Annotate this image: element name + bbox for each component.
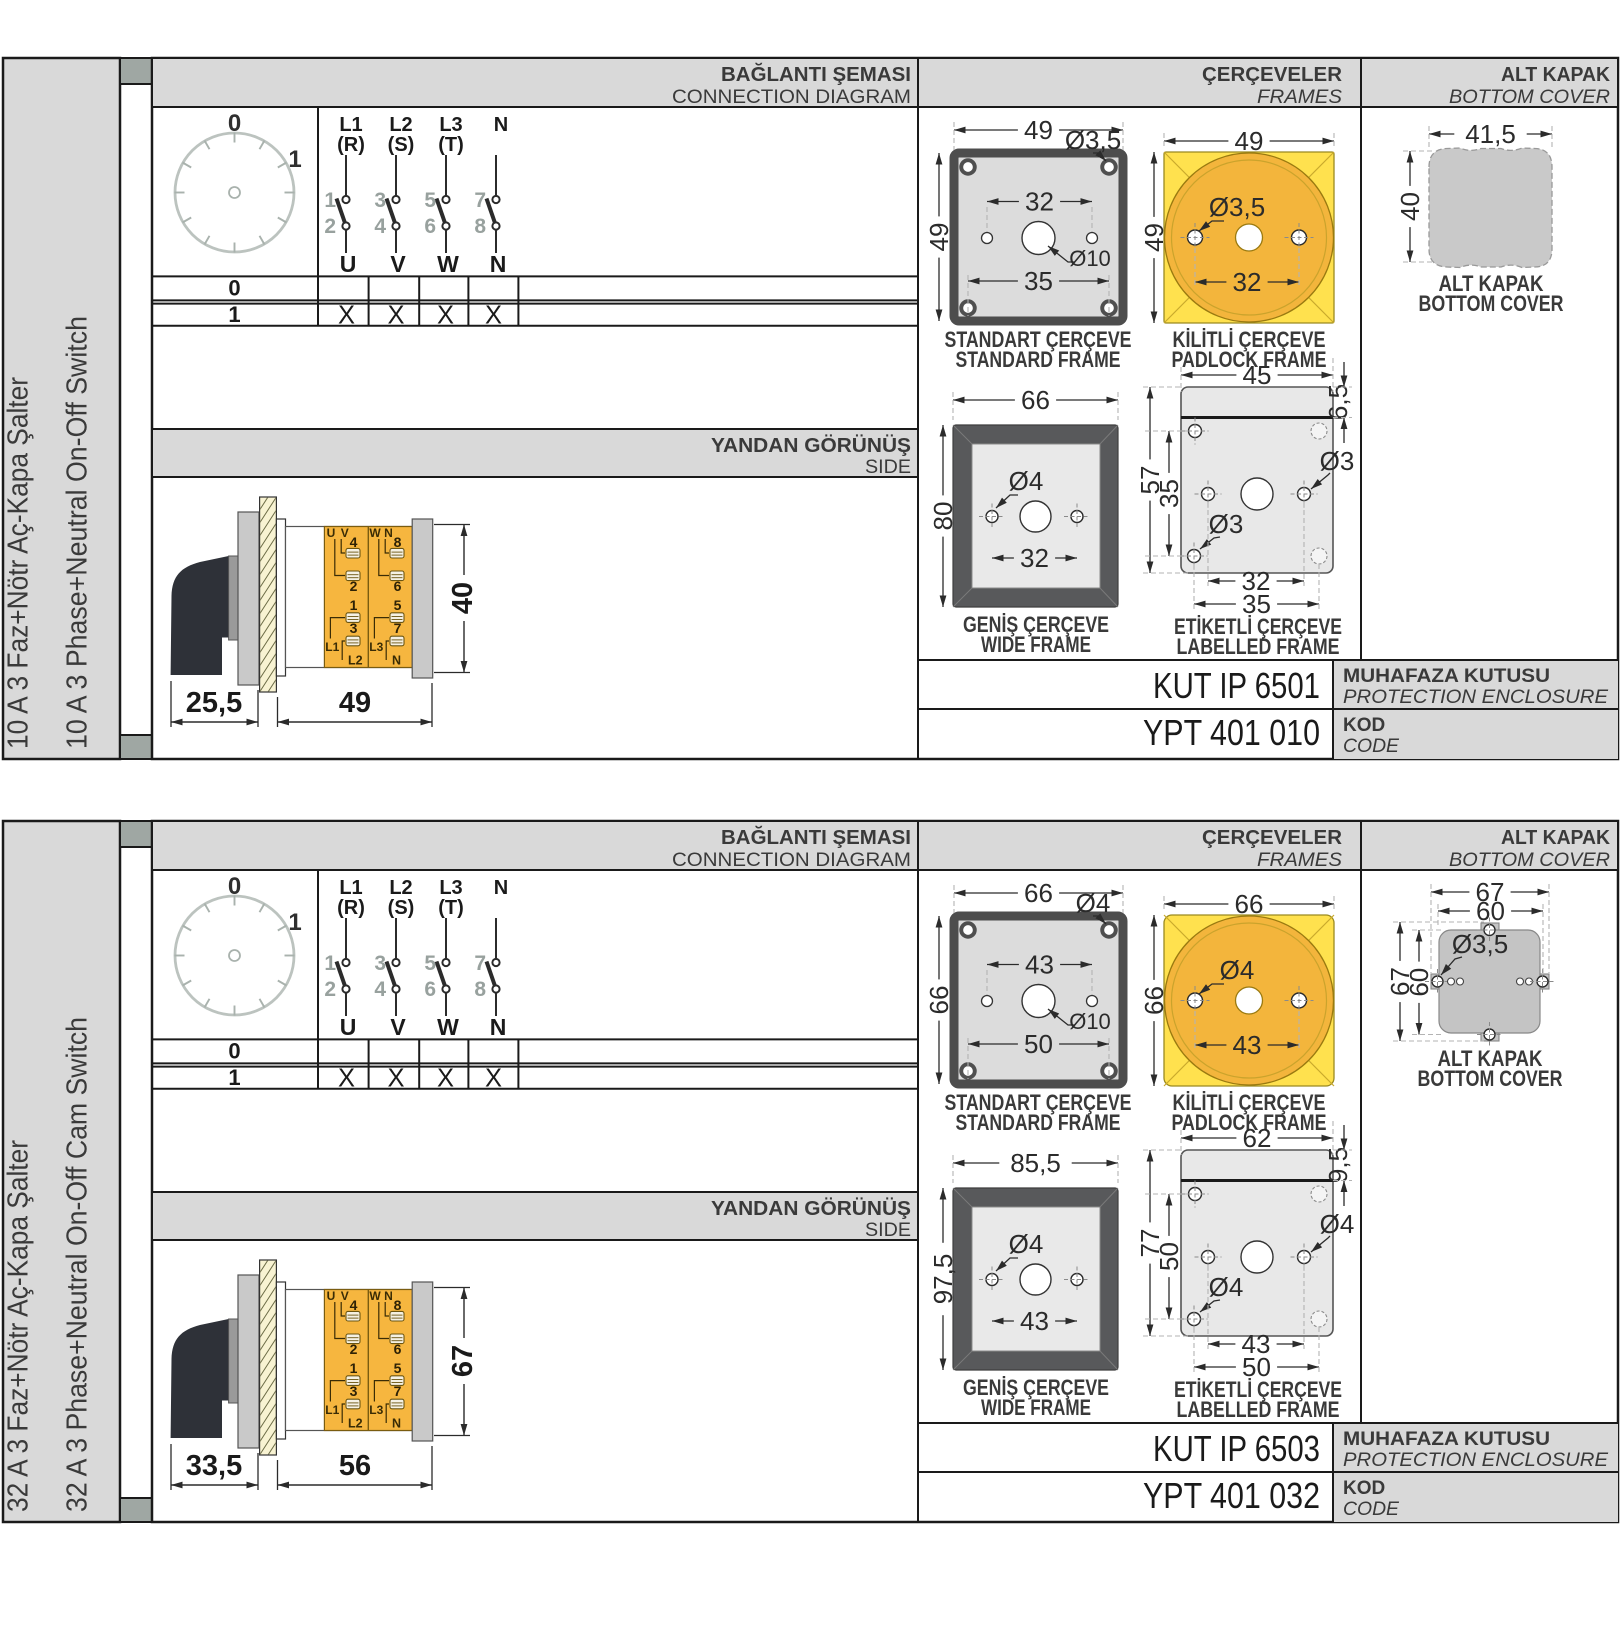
svg-text:X: X [338, 1065, 355, 1093]
svg-text:67: 67 [447, 1345, 479, 1377]
svg-text:40: 40 [447, 582, 479, 614]
svg-text:60: 60 [1476, 896, 1505, 926]
svg-text:STANDARD FRAME: STANDARD FRAME [956, 1110, 1121, 1135]
svg-text:Ø10: Ø10 [1069, 246, 1111, 271]
svg-text:10 A 3 Faz+Nötr Aç-Kapa Şalter: 10 A 3 Faz+Nötr Aç-Kapa Şalter [3, 377, 35, 749]
svg-text:YANDAN GÖRÜNÜŞ: YANDAN GÖRÜNÜŞ [711, 434, 911, 457]
svg-text:6: 6 [394, 1341, 402, 1357]
svg-text:L3: L3 [439, 114, 462, 136]
svg-text:N: N [494, 114, 508, 136]
svg-text:85,5: 85,5 [1010, 1148, 1061, 1178]
svg-text:45: 45 [1243, 360, 1272, 390]
svg-text:4: 4 [350, 1297, 358, 1313]
svg-text:V: V [341, 1289, 349, 1303]
svg-text:5: 5 [424, 952, 436, 975]
svg-text:W: W [369, 1289, 381, 1303]
svg-text:Ø3,5: Ø3,5 [1065, 125, 1121, 155]
svg-text:SIDE: SIDE [865, 1219, 911, 1241]
svg-text:CONNECTION DIAGRAM: CONNECTION DIAGRAM [672, 849, 911, 871]
svg-text:7: 7 [394, 620, 402, 636]
svg-text:YPT 401 010: YPT 401 010 [1143, 712, 1320, 753]
svg-text:2: 2 [324, 215, 336, 238]
svg-text:66: 66 [1235, 889, 1264, 919]
svg-text:BOTTOM COVER: BOTTOM COVER [1419, 291, 1564, 316]
svg-text:1: 1 [288, 909, 301, 936]
svg-text:BAĞLANTI ŞEMASI: BAĞLANTI ŞEMASI [721, 825, 911, 849]
svg-text:N: N [494, 877, 508, 899]
svg-text:32 A 3 Phase+Neutral On-Off Ca: 32 A 3 Phase+Neutral On-Off Cam Switch [62, 1017, 94, 1512]
svg-text:U: U [327, 1289, 336, 1303]
svg-text:8: 8 [474, 215, 486, 238]
svg-text:MUHAFAZA KUTUSU: MUHAFAZA KUTUSU [1343, 666, 1550, 687]
svg-text:KOD: KOD [1343, 1478, 1385, 1499]
svg-text:3: 3 [350, 1383, 358, 1399]
svg-text:Ø4: Ø4 [1076, 888, 1111, 918]
svg-text:66: 66 [1139, 986, 1169, 1015]
svg-text:L1: L1 [325, 1403, 339, 1417]
svg-text:BOTTOM COVER: BOTTOM COVER [1418, 1066, 1563, 1091]
svg-text:L3: L3 [369, 1403, 383, 1417]
svg-text:6: 6 [424, 215, 436, 238]
svg-text:L3: L3 [439, 877, 462, 899]
svg-text:6: 6 [394, 578, 402, 594]
svg-text:V: V [341, 526, 349, 540]
svg-text:L1: L1 [325, 640, 339, 654]
svg-text:35: 35 [1154, 479, 1184, 508]
svg-text:N: N [384, 526, 393, 540]
svg-text:32: 32 [1025, 186, 1054, 216]
svg-text:STANDARD FRAME: STANDARD FRAME [956, 347, 1121, 372]
svg-text:49: 49 [924, 223, 954, 252]
svg-text:W: W [437, 251, 459, 277]
svg-text:CODE: CODE [1343, 1499, 1399, 1520]
svg-text:49: 49 [339, 687, 371, 719]
svg-text:FRAMES: FRAMES [1257, 849, 1342, 871]
svg-text:(S): (S) [388, 897, 415, 919]
svg-text:N: N [384, 1289, 393, 1303]
svg-text:41,5: 41,5 [1465, 119, 1516, 149]
svg-text:49: 49 [1139, 223, 1169, 252]
svg-text:33,5: 33,5 [186, 1450, 242, 1482]
svg-text:6,5: 6,5 [1323, 384, 1353, 420]
svg-text:1: 1 [350, 597, 358, 613]
svg-text:25,5: 25,5 [186, 687, 242, 719]
svg-text:BOTTOM COVER: BOTTOM COVER [1449, 849, 1610, 871]
svg-text:32: 32 [1233, 267, 1262, 297]
svg-text:3: 3 [374, 952, 386, 975]
svg-text:3: 3 [374, 189, 386, 212]
svg-text:5: 5 [394, 1360, 402, 1376]
svg-text:N: N [490, 251, 507, 277]
svg-text:L2: L2 [348, 1417, 363, 1431]
svg-text:X: X [387, 1065, 404, 1093]
svg-text:PROTECTION ENCLOSURE: PROTECTION ENCLOSURE [1343, 1450, 1608, 1471]
svg-text:Ø4: Ø4 [1009, 1229, 1044, 1259]
svg-text:0: 0 [228, 275, 240, 300]
svg-text:BOTTOM COVER: BOTTOM COVER [1449, 86, 1610, 108]
svg-text:4: 4 [350, 534, 358, 550]
svg-text:KUT IP 6503: KUT IP 6503 [1153, 1428, 1320, 1469]
svg-text:N: N [392, 654, 401, 668]
svg-text:(T): (T) [438, 897, 464, 919]
svg-text:7: 7 [474, 189, 486, 212]
svg-text:8: 8 [394, 1297, 402, 1313]
svg-text:0: 0 [228, 1038, 240, 1063]
svg-text:80: 80 [928, 502, 958, 531]
svg-text:8: 8 [474, 978, 486, 1001]
svg-text:40: 40 [1395, 192, 1425, 221]
svg-text:CONNECTION DIAGRAM: CONNECTION DIAGRAM [672, 86, 911, 108]
svg-text:LABELLED FRAME: LABELLED FRAME [1177, 634, 1340, 659]
svg-text:Ø4: Ø4 [1209, 1272, 1244, 1302]
svg-text:49: 49 [1235, 126, 1264, 156]
svg-text:(T): (T) [438, 134, 464, 156]
svg-text:5: 5 [424, 189, 436, 212]
svg-text:32: 32 [1020, 543, 1049, 573]
svg-text:WIDE FRAME: WIDE FRAME [981, 632, 1091, 657]
svg-text:43: 43 [1233, 1030, 1262, 1060]
svg-text:0: 0 [228, 110, 241, 137]
svg-text:50: 50 [1154, 1242, 1184, 1271]
svg-text:L2: L2 [389, 877, 412, 899]
svg-text:Ø4: Ø4 [1320, 1209, 1355, 1239]
svg-text:X: X [338, 302, 355, 330]
svg-text:L1: L1 [339, 114, 362, 136]
svg-text:X: X [437, 1065, 454, 1093]
svg-text:BAĞLANTI ŞEMASI: BAĞLANTI ŞEMASI [721, 62, 911, 86]
svg-text:9,5: 9,5 [1323, 1147, 1353, 1183]
svg-text:ÇERÇEVELER: ÇERÇEVELER [1202, 64, 1343, 86]
svg-text:KOD: KOD [1343, 715, 1385, 736]
svg-text:(S): (S) [388, 134, 415, 156]
svg-text:V: V [390, 251, 406, 277]
svg-text:2: 2 [350, 578, 358, 594]
svg-text:1: 1 [288, 146, 301, 173]
svg-text:35: 35 [1024, 266, 1053, 296]
svg-text:X: X [485, 1065, 502, 1093]
svg-text:U: U [327, 526, 336, 540]
svg-text:43: 43 [1020, 1306, 1049, 1336]
svg-text:L2: L2 [348, 654, 363, 668]
svg-text:66: 66 [1021, 385, 1050, 415]
svg-text:Ø3,5: Ø3,5 [1452, 929, 1508, 959]
svg-text:WIDE FRAME: WIDE FRAME [981, 1395, 1091, 1420]
svg-text:7: 7 [394, 1383, 402, 1399]
svg-text:(R): (R) [337, 134, 365, 156]
svg-text:66: 66 [1024, 878, 1053, 908]
svg-text:FRAMES: FRAMES [1257, 86, 1342, 108]
svg-text:Ø3,5: Ø3,5 [1209, 192, 1265, 222]
svg-text:N: N [392, 1417, 401, 1431]
svg-text:ALT KAPAK: ALT KAPAK [1501, 827, 1611, 849]
svg-text:LABELLED FRAME: LABELLED FRAME [1177, 1397, 1340, 1422]
svg-text:62: 62 [1243, 1123, 1272, 1153]
svg-text:6: 6 [424, 978, 436, 1001]
svg-text:Ø4: Ø4 [1009, 466, 1044, 496]
svg-text:Ø3: Ø3 [1320, 446, 1355, 476]
svg-text:Ø3: Ø3 [1209, 509, 1244, 539]
svg-text:MUHAFAZA KUTUSU: MUHAFAZA KUTUSU [1343, 1429, 1550, 1450]
svg-text:1: 1 [324, 952, 336, 975]
svg-text:60: 60 [1404, 968, 1434, 997]
svg-text:L1: L1 [339, 877, 362, 899]
svg-text:X: X [437, 302, 454, 330]
svg-text:0: 0 [228, 873, 241, 900]
svg-text:X: X [387, 302, 404, 330]
svg-text:66: 66 [924, 986, 954, 1015]
svg-text:(R): (R) [337, 897, 365, 919]
svg-text:2: 2 [324, 978, 336, 1001]
svg-text:PROTECTION ENCLOSURE: PROTECTION ENCLOSURE [1343, 687, 1608, 708]
svg-text:1: 1 [324, 189, 336, 212]
svg-text:3: 3 [350, 620, 358, 636]
svg-text:W: W [437, 1014, 459, 1040]
svg-text:ALT KAPAK: ALT KAPAK [1501, 64, 1611, 86]
svg-text:Ø4: Ø4 [1220, 955, 1255, 985]
svg-text:X: X [485, 302, 502, 330]
svg-text:N: N [490, 1014, 507, 1040]
svg-text:KUT IP 6501: KUT IP 6501 [1153, 665, 1320, 706]
svg-text:CODE: CODE [1343, 736, 1399, 757]
svg-text:2: 2 [350, 1341, 358, 1357]
svg-text:4: 4 [374, 215, 386, 238]
svg-text:8: 8 [394, 534, 402, 550]
svg-text:YPT 401 032: YPT 401 032 [1143, 1475, 1320, 1516]
svg-text:49: 49 [1024, 115, 1053, 145]
svg-text:43: 43 [1025, 949, 1054, 979]
svg-text:Ø10: Ø10 [1069, 1009, 1111, 1034]
svg-text:56: 56 [339, 1450, 371, 1482]
svg-text:L3: L3 [369, 640, 383, 654]
svg-text:7: 7 [474, 952, 486, 975]
svg-text:4: 4 [374, 978, 386, 1001]
svg-text:YANDAN GÖRÜNÜŞ: YANDAN GÖRÜNÜŞ [711, 1197, 911, 1220]
svg-text:32 A 3 Faz+Nötr Aç-Kapa Şalter: 32 A 3 Faz+Nötr Aç-Kapa Şalter [3, 1140, 35, 1512]
svg-text:97,5: 97,5 [928, 1254, 958, 1305]
svg-text:1: 1 [228, 302, 240, 327]
svg-text:50: 50 [1024, 1029, 1053, 1059]
svg-text:ÇERÇEVELER: ÇERÇEVELER [1202, 827, 1343, 849]
svg-text:W: W [369, 526, 381, 540]
svg-text:V: V [390, 1014, 406, 1040]
svg-text:5: 5 [394, 597, 402, 613]
svg-text:U: U [340, 1014, 357, 1040]
svg-text:SIDE: SIDE [865, 456, 911, 478]
svg-text:1: 1 [350, 1360, 358, 1376]
svg-text:1: 1 [228, 1065, 240, 1090]
svg-text:U: U [340, 251, 357, 277]
svg-text:10 A 3 Phase+Neutral On-Off Sw: 10 A 3 Phase+Neutral On-Off Switch [62, 316, 94, 749]
svg-text:L2: L2 [389, 114, 412, 136]
